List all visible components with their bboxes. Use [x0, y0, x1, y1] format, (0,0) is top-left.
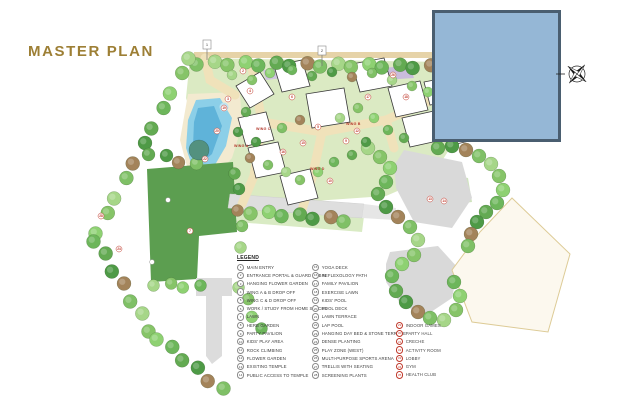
legend-item: 21LAWN TERRACE [312, 313, 406, 321]
legend-item-label: DENSE PLANTING [322, 339, 361, 344]
legend-item-number: 20 [312, 305, 319, 312]
legend-item-label: LAWN TERRACE [322, 314, 357, 319]
svg-text:WING C: WING C [256, 127, 271, 131]
legend-item-number: 35 [396, 371, 403, 378]
legend-item: 32ACTIVITY ROOM [396, 346, 441, 354]
svg-text:12: 12 [355, 129, 359, 133]
svg-text:WING D: WING D [310, 167, 325, 171]
legend-item-number: 9 [237, 330, 244, 337]
svg-text:WING B: WING B [346, 122, 361, 126]
legend-item-label: WING A & B DROP OFF [247, 290, 296, 295]
legend-item: 33LOBBY [396, 354, 441, 362]
svg-text:7: 7 [189, 229, 191, 233]
svg-text:24: 24 [117, 247, 121, 251]
legend-item-number: 23 [312, 330, 319, 337]
legend-item-label: FLOWER GARDEN [247, 356, 286, 361]
legend-item: 31CRECHE [396, 338, 441, 346]
legend-item-label: EXISTING TEMPLE [247, 364, 287, 369]
legend-item-label: LOBBY [406, 356, 421, 361]
legend-item-label: HERB GARDEN [247, 323, 280, 328]
legend-column-3: 29INDOOR GAMES30PARTY HALL31CRECHE32ACTI… [396, 321, 441, 379]
legend-item: 35HEALTH CLUB [396, 371, 441, 379]
legend-item: 27TRELLIS WITH SEATING [312, 363, 406, 371]
legend-item-label: ACTIVITY ROOM [406, 348, 441, 353]
legend-item-label: MULTI-PURPOSE SPORTS ARENA [322, 356, 394, 361]
legend-item-number: 28 [312, 371, 319, 378]
legend-item-number: 31 [396, 338, 403, 345]
legend-item-number: 17 [312, 280, 319, 287]
legend-item-number: 6 [237, 305, 244, 312]
svg-text:20: 20 [215, 129, 219, 133]
legend-item: 26MULTI-PURPOSE SPORTS ARENA [312, 354, 406, 362]
svg-text:15: 15 [301, 141, 305, 145]
legend-item-number: 29 [396, 322, 403, 329]
legend-item-number: 19 [312, 297, 319, 304]
legend-item-number: 26 [312, 355, 319, 362]
legend-item-label: WING C & D DROP OFF [247, 298, 297, 303]
master-plan-page: MASTER PLAN [0, 0, 618, 404]
svg-text:18: 18 [404, 95, 408, 99]
svg-text:9: 9 [345, 139, 347, 143]
legend-item-label: INDOOR GAMES [406, 323, 441, 328]
legend-item-label: YOGA DECK [322, 265, 348, 270]
legend-item-number: 30 [396, 330, 403, 337]
svg-text:28: 28 [99, 214, 103, 218]
legend-item-label: PARTY PAVILION [247, 331, 283, 336]
legend-column-2: 15YOGA DECK16REFLEXOLOGY PATH17FAMILY PA… [312, 263, 406, 379]
legend-item-label: LAP POOL [322, 323, 344, 328]
svg-text:14: 14 [442, 199, 446, 203]
central-lawn [147, 162, 237, 282]
legend-item-number: 22 [312, 322, 319, 329]
legend-item-label: TRELLIS WITH SEATING [322, 364, 373, 369]
legend-item-label: HANGING FLOWER GARDEN [247, 281, 308, 286]
legend-item: 20POOL DECK [312, 304, 406, 312]
legend-item-label: HANGING DAY BED & STONE TERRACE [322, 331, 406, 336]
legend-item-number: 4 [237, 288, 244, 295]
legend-item-number: 34 [396, 363, 403, 370]
svg-text:10: 10 [328, 179, 332, 183]
legend-item: 22LAP POOL [312, 321, 406, 329]
legend-item-number: 1 [237, 264, 244, 271]
legend-item-number: 5 [237, 297, 244, 304]
adjacent-plot [452, 198, 570, 332]
legend-item-number: 3 [237, 280, 244, 287]
compass-icon [556, 54, 600, 96]
svg-text:3: 3 [227, 97, 229, 101]
svg-text:6: 6 [291, 95, 293, 99]
legend-item-label: CRECHE [406, 339, 425, 344]
legend-item-label: PLAY ZONE (WEST) [322, 348, 364, 353]
legend-item-number: 33 [396, 355, 403, 362]
svg-text:26: 26 [391, 73, 395, 77]
legend-item: 16REFLEXOLOGY PATH [312, 271, 406, 279]
legend-item-label: SCREENING PLANTS [322, 373, 367, 378]
legend-item-number: 25 [312, 347, 319, 354]
legend-item-label: HEALTH CLUB [406, 372, 436, 377]
svg-text:19: 19 [222, 106, 226, 110]
legend-item: 24DENSE PLANTING [312, 338, 406, 346]
legend-item: 15YOGA DECK [312, 263, 406, 271]
legend-item-number: 24 [312, 338, 319, 345]
legend-item: 19KIDS' POOL [312, 296, 406, 304]
legend-item-label: GYM [406, 364, 416, 369]
legend-item: 18EXERCISE LAWN [312, 288, 406, 296]
legend-item-number: 32 [396, 346, 403, 353]
svg-text:17: 17 [366, 95, 370, 99]
svg-text:22: 22 [203, 157, 207, 161]
legend-item-number: 14 [237, 371, 244, 378]
legend-item-number: 15 [312, 264, 319, 271]
legend-item: 34GYM [396, 362, 441, 370]
legend-item-number: 7 [237, 313, 244, 320]
svg-text:WING A: WING A [234, 144, 249, 148]
legend-item-number: 10 [237, 338, 244, 345]
svg-text:5: 5 [317, 125, 319, 129]
legend-item: 23HANGING DAY BED & STONE TERRACE [312, 329, 406, 337]
legend-item-label: ROCK CLIMBING [247, 348, 283, 353]
legend-item-label: KIDS' PLAY AREA [247, 339, 284, 344]
legend-item-label: EXERCISE LAWN [322, 290, 358, 295]
legend-item-number: 13 [237, 363, 244, 370]
svg-text:4: 4 [249, 89, 251, 93]
legend-item-label: LAWN [247, 314, 260, 319]
legend-item-label: REFLEXOLOGY PATH [322, 273, 368, 278]
legend-item: 17FAMILY PAVILION [312, 280, 406, 288]
legend-item-number: 12 [237, 355, 244, 362]
legend-item-label: PUBLIC ACCESS TO TEMPLE [247, 373, 309, 378]
legend-item-number: 27 [312, 363, 319, 370]
legend-item: 30PARTY HALL [396, 329, 441, 337]
legend-item: 25PLAY ZONE (WEST) [312, 346, 406, 354]
legend-item-label: KIDS' POOL [322, 298, 347, 303]
legend-item-number: 8 [237, 322, 244, 329]
legend-item-number: 16 [312, 272, 319, 279]
legend-item-number: 21 [312, 313, 319, 320]
svg-text:2: 2 [242, 69, 244, 73]
existing-structure-north [394, 150, 472, 228]
legend-heading: LEGEND [237, 255, 259, 261]
svg-text:13: 13 [428, 197, 432, 201]
legend-item: 29INDOOR GAMES [396, 321, 441, 329]
legend-item-number: 11 [237, 347, 244, 354]
legend-item-label: MAIN ENTRY [247, 265, 274, 270]
legend-item-label: FAMILY PAVILION [322, 281, 359, 286]
legend-item-label: PARTY HALL [406, 331, 433, 336]
legend-item: 28SCREENING PLANTS [312, 371, 406, 379]
svg-text:16: 16 [281, 150, 285, 154]
legend-item-number: 18 [312, 288, 319, 295]
blue-cover-box [432, 10, 561, 142]
legend-item-number: 2 [237, 272, 244, 279]
legend-item-label: POOL DECK [322, 306, 348, 311]
